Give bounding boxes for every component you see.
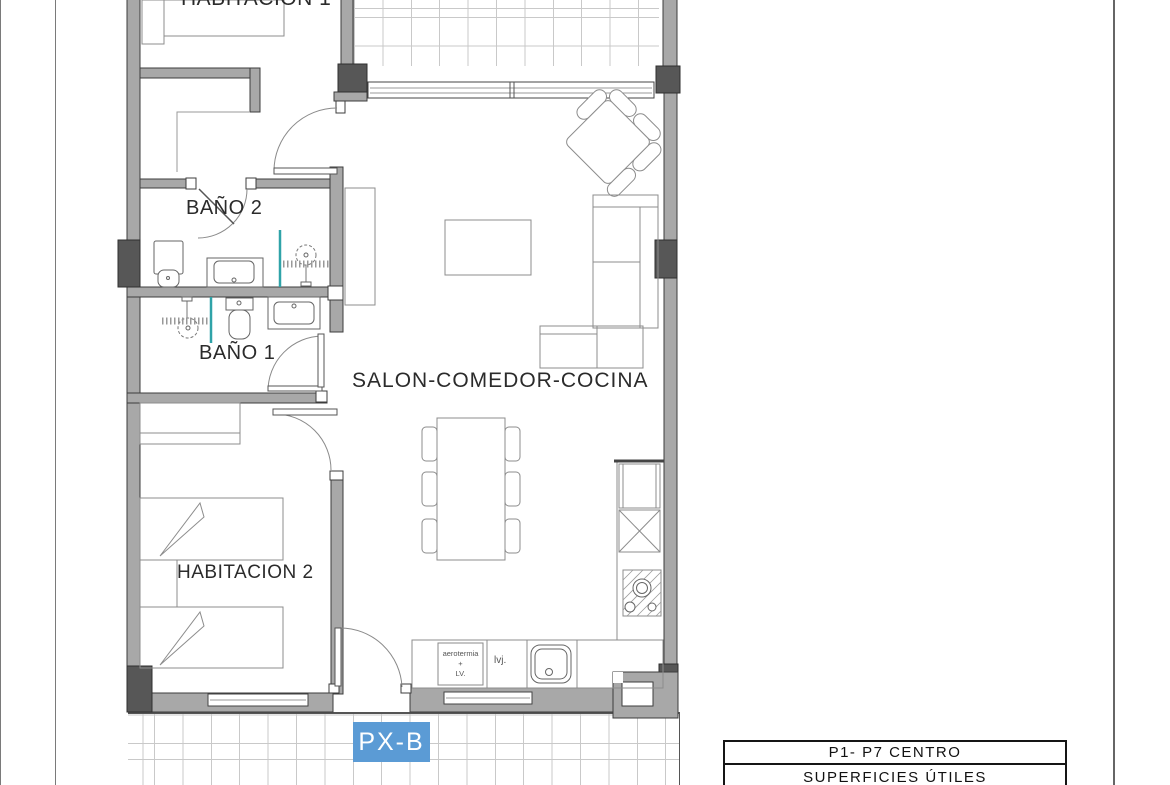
chair [422, 427, 437, 461]
wall-bath1-right [330, 300, 343, 332]
dining-table [437, 418, 505, 560]
floor-plan-sheet: HABITACION 1 BAÑO 2 BAÑO 1 SALON-COMEDOR… [0, 0, 1170, 785]
sink-kitchen-symbol [531, 645, 571, 683]
dining-set [422, 418, 520, 560]
pillar-bottom-left [127, 666, 152, 712]
chair [422, 519, 437, 553]
wall-right [664, 93, 677, 670]
wall-bath2-top-left [140, 179, 190, 188]
pillar-top-left [338, 64, 367, 92]
coffee-table [445, 220, 531, 275]
aerotermia-label: aerotermia + LV. [438, 643, 483, 685]
label-bathroom1: BAÑO 1 [199, 342, 275, 365]
bedroom2-furniture [140, 403, 283, 668]
hall-lines [177, 112, 250, 172]
sink-symbol [207, 258, 263, 287]
plan-code-tag: PX-B [353, 722, 430, 762]
bathroom2-fixtures [154, 230, 331, 287]
wall-terrace-left [341, 0, 353, 66]
tv-cabinet [345, 188, 375, 305]
nightstand [140, 560, 177, 607]
wardrobe-bedroom1-left [142, 0, 164, 44]
wall-terrace-right [663, 0, 677, 66]
sofa [540, 195, 658, 368]
corner-duct [613, 672, 678, 718]
title-block-project: P1- P7 CENTRO [725, 742, 1065, 765]
living-furniture [345, 78, 672, 368]
title-block: P1- P7 CENTRO SUPERFICIES ÚTILES [723, 740, 1067, 785]
door-entrance-terrace [335, 628, 402, 687]
door-bedroom2 [273, 409, 337, 470]
window-bedroom2 [208, 694, 308, 706]
wall-hall-salon [330, 167, 343, 288]
chair [505, 472, 520, 506]
wall-bedroom1-corner [250, 68, 260, 112]
door-hall-salon [274, 108, 337, 174]
sink-symbol [268, 297, 320, 329]
chair [505, 427, 520, 461]
wall-bath1-bottom [127, 393, 327, 403]
wardrobe-bedroom2 [140, 403, 240, 444]
toilet-symbol [226, 298, 253, 339]
wall-left [127, 0, 140, 712]
hob-symbol [623, 570, 661, 616]
label-bathroom2: BAÑO 2 [186, 197, 262, 220]
pillar-top-right [656, 66, 680, 93]
pillar-left-mid [118, 240, 140, 287]
wall-bath2-top-right [248, 179, 332, 188]
bed-2 [140, 607, 283, 668]
toilet-symbol [154, 241, 183, 287]
shower-symbol [162, 297, 213, 343]
fridge-symbol [614, 461, 664, 508]
bathroom1-fixtures [162, 297, 320, 343]
bed-1 [140, 498, 283, 560]
wall-under-pillar [334, 92, 367, 101]
duct-notch [613, 672, 623, 683]
window-kitchen [444, 692, 532, 704]
title-block-subtitle: SUPERFICIES ÚTILES [725, 765, 1065, 785]
door-bath1 [268, 334, 324, 391]
label-bedroom2: HABITACION 2 [177, 562, 314, 584]
label-living-room: SALON-COMEDOR-COCINA [352, 369, 649, 393]
wall-bath-divider [127, 287, 343, 297]
shower-symbol [280, 230, 331, 287]
label-bedroom1: HABITACION 1 [181, 0, 331, 11]
dishwasher-label: lvj. [494, 655, 506, 666]
duct-inner [622, 682, 653, 706]
wall-bedroom1-bottom [140, 68, 260, 78]
chair [505, 519, 520, 553]
shaft-symbol [619, 510, 660, 552]
chair [422, 472, 437, 506]
